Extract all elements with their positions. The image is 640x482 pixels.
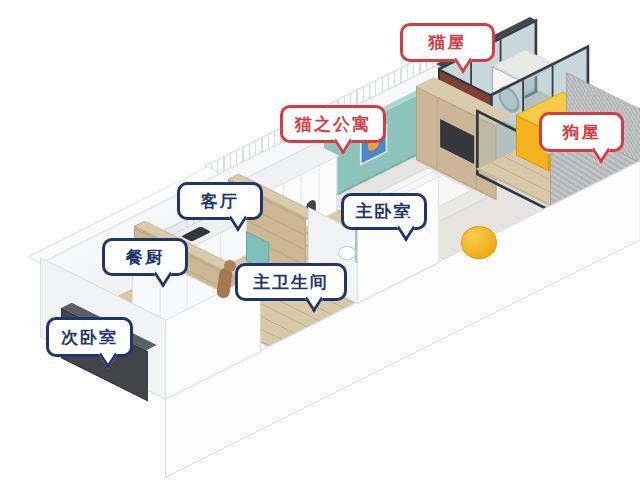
label-cat-house: 猫屋 xyxy=(400,23,495,62)
label-master-bathroom: 主卫生间 xyxy=(235,263,347,301)
label-dog-house: 狗屋 xyxy=(539,112,624,152)
label-text: 客厅 xyxy=(201,193,239,210)
tv-screen xyxy=(440,119,474,164)
label-living-room: 客厅 xyxy=(177,182,263,220)
label-text: 猫之公寓 xyxy=(295,116,371,133)
cooktop xyxy=(181,226,211,241)
wardrobe-seam xyxy=(437,97,438,169)
label-text: 餐厨 xyxy=(126,249,164,266)
toilet xyxy=(338,246,356,260)
bean-bag xyxy=(461,226,497,259)
label-text: 主卫生间 xyxy=(253,274,329,291)
isometric-floorplan: 猫屋 猫之公寓 狗屋 客厅 餐厨 次卧室 主卫生间 主卧室 xyxy=(0,0,640,482)
label-secondary-bedroom: 次卧室 xyxy=(46,317,133,357)
label-text: 狗屋 xyxy=(563,124,601,141)
label-cat-apartment: 猫之公寓 xyxy=(280,105,386,143)
label-dining-kitchen: 餐厨 xyxy=(102,238,188,276)
label-master-bedroom: 主卧室 xyxy=(341,193,427,230)
